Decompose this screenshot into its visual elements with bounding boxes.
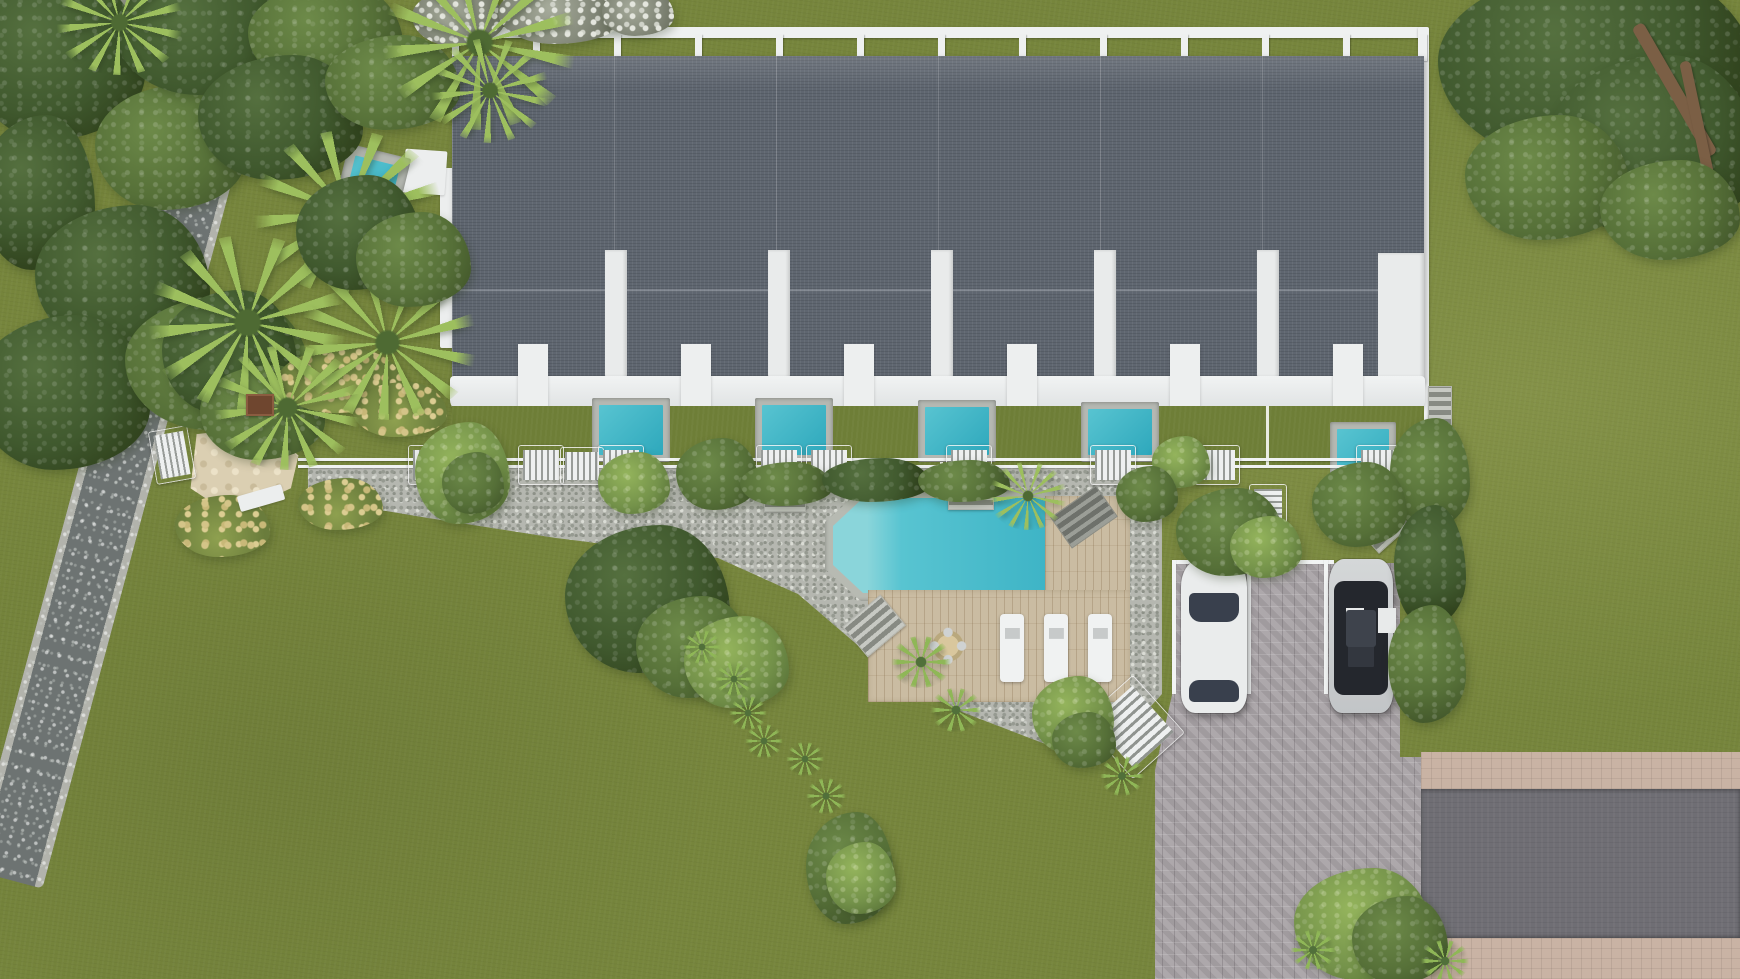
edge-palm-tuft <box>745 724 783 758</box>
sun-lounger <box>1088 614 1112 682</box>
edge-palm-tuft <box>806 778 846 814</box>
tree-cluster <box>1600 160 1740 260</box>
tree-over-pool <box>356 212 471 307</box>
white-car <box>1181 561 1247 713</box>
parking-hedge <box>1388 605 1466 723</box>
driveway-shrub <box>1290 930 1336 970</box>
sun-lounger <box>1000 614 1024 682</box>
parking-stall-line <box>1324 560 1328 694</box>
driveway-shrub <box>1420 940 1470 979</box>
roof-terrace-slot <box>1094 250 1116 380</box>
planter-box <box>246 394 274 416</box>
palm-tree <box>430 38 550 143</box>
roof-corner-terrace <box>1378 253 1424 385</box>
unit-divider-wall <box>1266 406 1269 466</box>
street-asphalt <box>1421 789 1740 938</box>
parking-shrub <box>1100 756 1144 796</box>
parking-tree <box>1230 516 1302 578</box>
fence-shrub <box>598 452 670 514</box>
flower-shrub <box>298 478 383 530</box>
gravel-tree <box>442 452 504 514</box>
lawn-palm-tuft <box>930 688 982 732</box>
parking-tree <box>1116 466 1178 522</box>
roof-terrace-slot <box>605 250 627 380</box>
sidewalk-top <box>1421 752 1740 789</box>
pool-hedge <box>822 458 930 502</box>
parking-stall-line <box>1172 560 1176 694</box>
site-plan-rendering <box>0 0 1740 979</box>
pool-palm <box>988 462 1068 530</box>
edge-palm-tuft <box>715 662 753 696</box>
pool5-shrub <box>1312 462 1407 547</box>
roof-terrace-slot <box>1257 250 1279 380</box>
sun-lounger <box>1044 614 1068 682</box>
lawn-shrub <box>826 842 896 914</box>
black-car <box>1329 559 1393 713</box>
lawn-palm-tuft <box>890 636 952 688</box>
pool-hedge <box>740 462 832 506</box>
edge-palm-tuft <box>683 630 721 664</box>
garden-gate <box>518 445 564 485</box>
palm-tree <box>210 345 365 470</box>
roof-terrace-slot <box>931 250 953 380</box>
edge-palm-tuft <box>786 742 824 776</box>
parking-stall-line <box>1247 560 1251 694</box>
roof-terrace-slot <box>768 250 790 380</box>
entry-gate-left <box>148 425 197 485</box>
parking-shrub <box>1052 712 1116 768</box>
